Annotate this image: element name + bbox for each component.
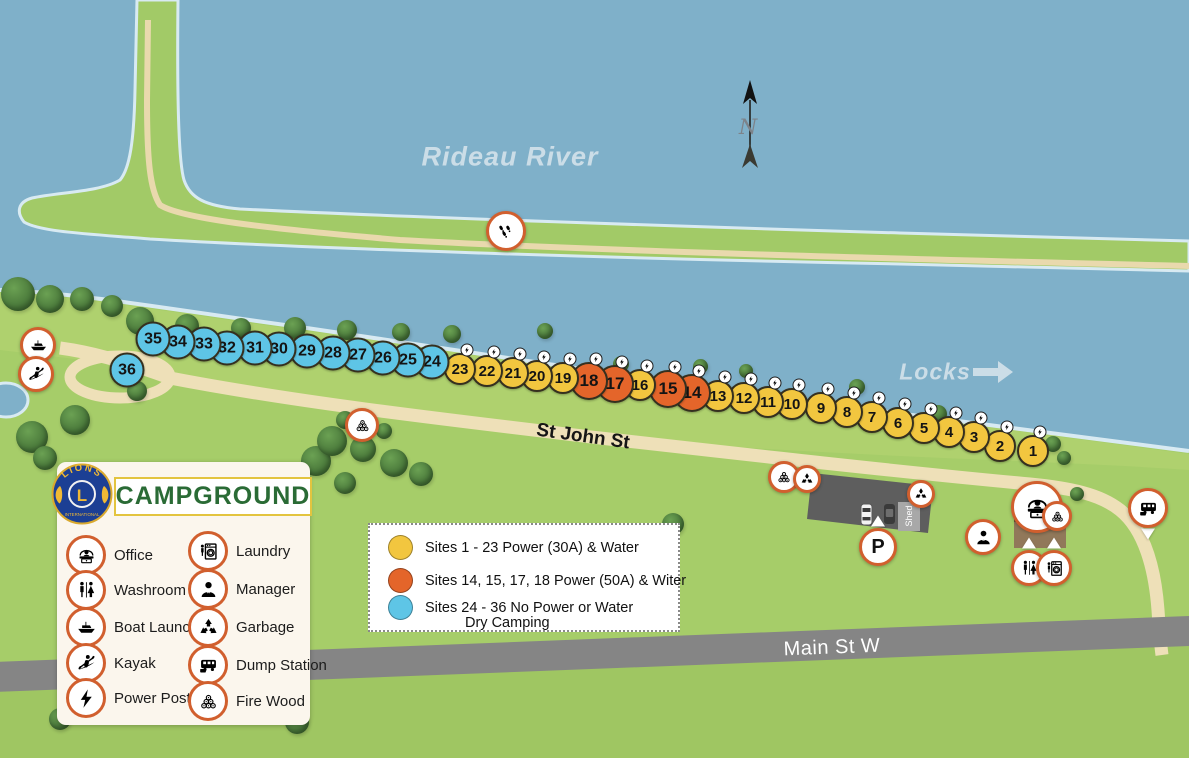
sym-laundry [1045,559,1064,578]
sym-dump [198,655,219,676]
power-post-mini-icon [719,371,732,384]
svg-text:INTERNATIONAL: INTERNATIONAL [65,512,100,517]
legend-item-label: Manager [236,581,295,598]
site-number: 5 [920,420,928,437]
site-number: 33 [195,335,213,353]
lions-club-logo: L LIONS INTERNATIONAL [51,463,113,525]
site-number: 15 [659,379,678,399]
site-number: 25 [399,351,417,369]
site-number: 20 [529,368,546,385]
tree [317,426,347,456]
legend-item-manager: Manager [188,569,295,609]
poi-firewood-icon [1042,501,1072,531]
site-number: 2 [996,438,1004,455]
parking-letter: P [871,536,884,559]
site-number: 24 [423,353,441,371]
tree [537,323,553,339]
power-post-mini-icon [488,346,501,359]
tree [409,462,433,486]
site-number: 10 [784,396,801,413]
legend-item-power-post: Power Post [66,678,191,718]
poi-parking-icon: P [859,528,897,566]
sym-boat [76,617,97,638]
sym-firewood [198,691,219,712]
legend-title: CAMPGROUND [114,477,312,516]
sym-footprints [496,221,517,242]
power-post-mini-icon [848,387,861,400]
power-post-mini-icon [925,403,938,416]
tree [334,472,356,494]
site-number: 36 [118,361,136,379]
power-post-icon [66,678,106,718]
poi-footprints-icon [486,211,526,251]
power-post-mini-icon [564,353,577,366]
legend-item-label: Dump Station [236,657,327,674]
site-marker-36: 36 [110,353,145,388]
site-number: 22 [479,363,496,380]
sym-manager [198,579,219,600]
legend-item-label: Fire Wood [236,693,305,710]
site-number: 23 [452,361,469,378]
car [884,504,895,524]
legend-item-label: Kayak [114,655,156,672]
site-number: 18 [580,371,599,391]
power-post-mini-icon [641,360,654,373]
river-label: Rideau River [421,142,598,173]
campground-map: Rideau River Locks St John St Main St W … [0,0,1189,758]
sites-legend-row: Sites 1 - 23 Power (30A) & Water [388,535,639,560]
legend-item-label: Office [114,547,153,564]
poi-pointer-up [1022,538,1036,549]
legend-item-kayak: Kayak [66,643,156,683]
shed-label: Shed [904,505,914,526]
power-post-mini-icon [793,379,806,392]
site-number: 3 [970,429,978,446]
sites-legend: Sites 1 - 23 Power (30A) & WaterSites 14… [368,523,680,632]
power-post-mini-icon [1001,421,1014,434]
site-number: 29 [298,342,316,360]
svg-text:N: N [738,115,758,139]
sym-laundry [198,541,219,562]
power-post-mini-icon [693,365,706,378]
sym-wc [76,580,97,601]
site-number: 26 [374,349,392,367]
firewood-icon [188,681,228,721]
site-number: 17 [606,374,625,394]
legend-item-washroom: Washroom [66,570,186,610]
manager-icon [188,569,228,609]
kayak-icon [66,643,106,683]
sym-dump [1138,498,1159,519]
power-post-mini-icon [669,361,682,374]
tree [1,277,35,311]
site-number: 1 [1029,443,1037,460]
office-icon [66,535,106,575]
tree [36,285,64,313]
tree [70,287,94,311]
site-number: 34 [169,333,187,351]
boat-launch-icon [66,607,106,647]
poi-kayak-icon [18,356,54,392]
power-post-mini-icon [769,377,782,390]
power-post-mini-icon [745,373,758,386]
legend-item-label: Power Post [114,690,191,707]
site-type-swatch [388,568,413,593]
garbage-icon [188,607,228,647]
site-number: 21 [505,365,522,382]
tree [1057,451,1071,465]
legend-item-laundry: Laundry [188,531,290,571]
sym-boat [29,336,48,355]
power-post-mini-icon [514,348,527,361]
power-post-mini-icon [873,392,886,405]
main-st-label: Main St W [783,635,881,662]
tree [392,323,410,341]
sites-legend-label: Sites 24 - 36 No Power or Water [425,600,633,616]
site-number: 8 [843,404,851,421]
north-letter: N [733,113,763,143]
power-post-mini-icon [590,353,603,366]
tree [1070,487,1084,501]
legend-item-label: Washroom [114,582,186,599]
site-number: 35 [144,330,162,348]
poi-manager-icon [965,519,1001,555]
poi-firewood-icon [345,408,379,442]
site-number: 16 [632,377,649,394]
legend-item-boat-launch: Boat Launch [66,607,198,647]
site-type-swatch [388,595,413,620]
site-type-swatch [388,535,413,560]
site-number: 9 [817,400,825,417]
poi-pointer-up [1047,538,1061,549]
power-post-mini-icon [616,356,629,369]
power-post-mini-icon [822,383,835,396]
poi-pointer-down [1141,529,1155,540]
sym-kayak [76,653,97,674]
site-number: 11 [760,394,776,411]
dump-station-icon [188,645,228,685]
site-number: 4 [945,424,953,441]
sym-kayak [27,365,46,384]
sym-firewood [354,417,371,434]
locks-label: Locks [899,359,970,386]
svg-text:L: L [77,486,87,505]
site-number: 28 [324,344,342,362]
laundry-icon [188,531,228,571]
tree [101,295,123,317]
sym-bolt [76,688,97,709]
site-marker-35: 35 [136,322,171,357]
site-number: 7 [868,409,876,426]
site-number: 6 [894,415,902,432]
tree [443,325,461,343]
site-number: 27 [349,346,367,364]
legend-item-firewood: Fire Wood [188,681,305,721]
site-number: 31 [246,339,264,357]
tree [380,449,408,477]
site-marker-1: 1 [1017,435,1049,467]
washroom-icon [66,570,106,610]
sym-office [76,545,97,566]
site-number: 19 [555,370,572,387]
legend-item-office: Office [66,535,153,575]
power-post-mini-icon [899,398,912,411]
site-number: 12 [736,390,753,407]
sites-legend-label: Sites 1 - 23 Power (30A) & Water [425,540,639,556]
sym-firewood [1050,509,1065,524]
legend-item-label: Boat Launch [114,619,198,636]
site-number: 30 [270,340,288,358]
poi-laundry-icon [1036,550,1072,586]
legend-item-label: Laundry [236,543,290,560]
sites-legend-label-2: Dry Camping [465,615,550,631]
sym-recycle [800,472,814,486]
sites-legend-label: Sites 14, 15, 17, 18 Power (50A) & Witer [425,573,686,589]
legend-item-label: Garbage [236,619,294,636]
power-post-mini-icon [975,412,988,425]
tree [60,405,90,435]
site-marker-9: 9 [805,392,837,424]
legend-item-garbage: Garbage [188,607,294,647]
power-post-mini-icon [538,351,551,364]
sym-recycle [914,487,928,501]
sym-manager [974,528,993,547]
power-post-mini-icon [461,344,474,357]
poi-recycle-icon [907,480,935,508]
sym-recycle [198,617,219,638]
power-post-mini-icon [1034,426,1047,439]
site-number: 13 [710,388,727,405]
poi-pointer-up [871,516,885,527]
power-post-mini-icon [950,407,963,420]
poi-recycle-icon [793,465,821,493]
legend-item-dump-station: Dump Station [188,645,327,685]
sym-firewood [776,469,792,485]
poi-dump-station-icon [1128,488,1168,528]
sites-legend-row: Sites 14, 15, 17, 18 Power (50A) & Witer [388,568,686,593]
